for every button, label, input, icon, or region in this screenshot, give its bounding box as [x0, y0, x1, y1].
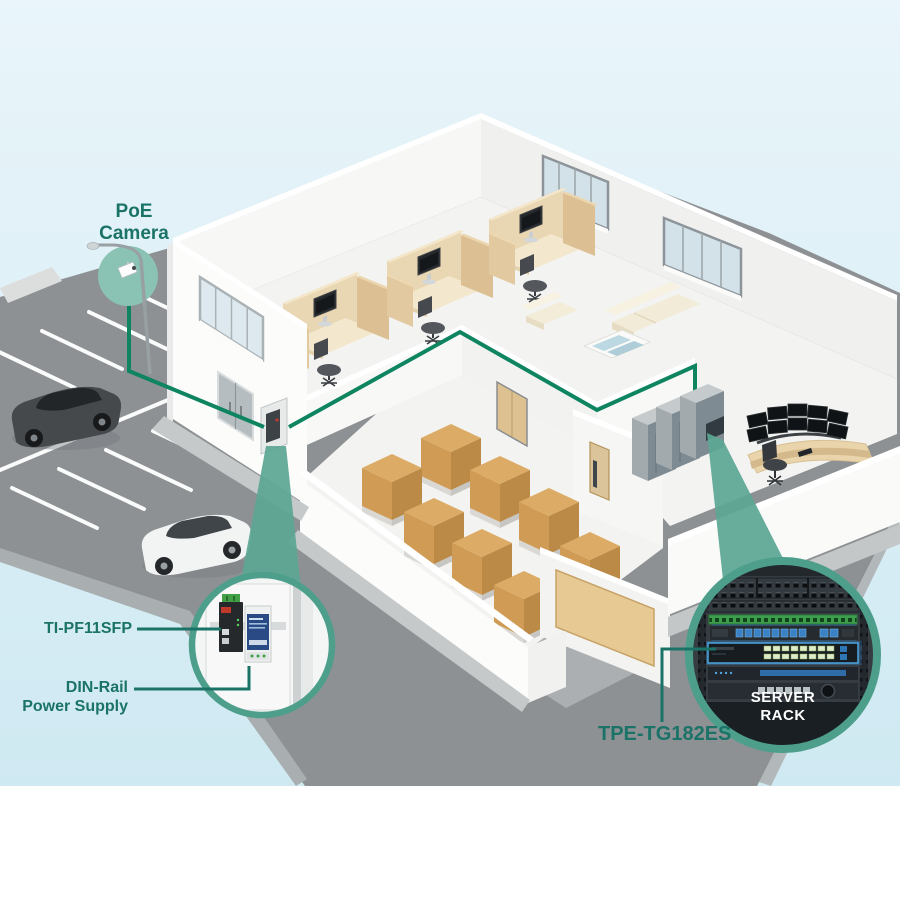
poe-camera-label: PoE Camera	[86, 201, 182, 245]
door-handle	[593, 460, 597, 488]
rack-server	[708, 667, 858, 680]
application-diagram: PoE Camera TI-PF11SFP DIN-Rail Power Sup…	[0, 0, 900, 900]
isometric-scene	[0, 0, 900, 900]
poe-camera-label-line2: Camera	[86, 223, 182, 245]
poe-camera-label-line1: PoE	[86, 201, 182, 223]
server-rack-label-line1: SERVER	[733, 689, 833, 707]
patch-panels	[707, 578, 859, 612]
bottom-margin	[0, 786, 900, 900]
din-rail-power-supply-device	[245, 606, 271, 662]
tpe-tg182es-switch	[706, 641, 862, 665]
tpe-tg182es-label: TPE-TG182ES	[598, 723, 738, 746]
green-patch-panel	[709, 615, 857, 624]
server-room-door	[590, 442, 609, 500]
server-rack-label: SERVER RACK	[733, 689, 833, 725]
din-rail-label-line2: Power Supply	[16, 697, 128, 716]
wall-mount-enclosure	[261, 398, 287, 454]
din-rail-label-line1: DIN-Rail	[16, 678, 128, 697]
door-frame-bar	[293, 570, 301, 722]
din-rail-power-supply-label: DIN-Rail Power Supply	[16, 678, 128, 716]
ti-pf11sfp-label: TI-PF11SFP	[28, 620, 132, 638]
ti-pf11sfp-device	[219, 594, 243, 652]
server-rack-label-line2: RACK	[733, 707, 833, 725]
poe-switch-upper	[710, 624, 858, 641]
